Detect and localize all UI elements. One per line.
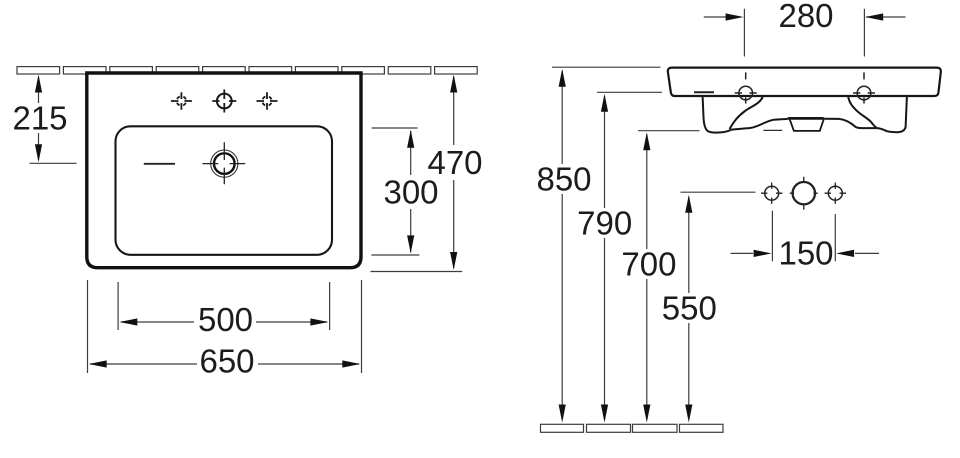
svg-text:550: 550 — [662, 289, 717, 326]
svg-text:850: 850 — [536, 160, 591, 197]
svg-text:650: 650 — [199, 342, 254, 379]
svg-text:215: 215 — [12, 99, 67, 136]
svg-text:500: 500 — [198, 301, 253, 338]
svg-text:700: 700 — [621, 245, 676, 282]
svg-text:150: 150 — [778, 234, 833, 271]
svg-text:300: 300 — [383, 173, 438, 210]
svg-text:790: 790 — [577, 204, 632, 241]
svg-text:280: 280 — [778, 0, 833, 34]
